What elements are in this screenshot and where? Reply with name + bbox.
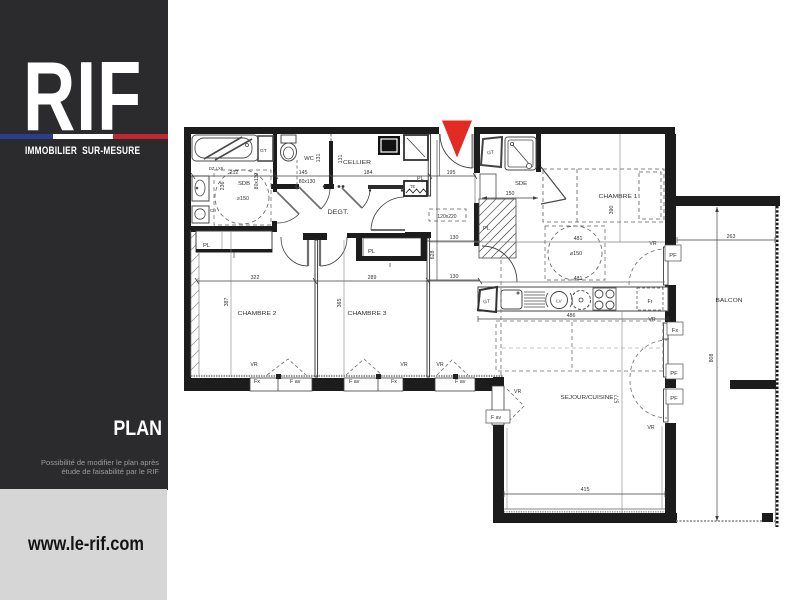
svg-text:80x130: 80x130: [299, 179, 316, 185]
svg-text:F av: F av: [290, 379, 301, 385]
svg-text:F av: F av: [349, 379, 360, 385]
svg-text:VR: VR: [514, 389, 521, 395]
svg-text:131: 131: [316, 154, 322, 163]
svg-text:VR: VR: [400, 362, 407, 368]
svg-text:80x130: 80x130: [254, 173, 260, 190]
svg-text:390: 390: [609, 206, 615, 215]
svg-text:F av: F av: [491, 415, 501, 421]
svg-text:263: 263: [727, 234, 736, 240]
svg-text:PL: PL: [368, 249, 376, 255]
svg-text:CELLIER: CELLIER: [343, 160, 371, 166]
svg-text:F av: F av: [455, 379, 466, 385]
svg-text:808: 808: [709, 354, 715, 363]
svg-text:481: 481: [574, 236, 583, 242]
svg-text:387: 387: [224, 298, 230, 307]
svg-text:GT: GT: [260, 148, 267, 154]
svg-text:SEJOUR/CUISINE: SEJOUR/CUISINE: [561, 395, 614, 401]
svg-text:130: 130: [450, 235, 459, 241]
svg-text:184: 184: [364, 170, 373, 176]
svg-text:VR: VR: [436, 362, 443, 368]
svg-text:415: 415: [581, 487, 590, 493]
svg-text:145: 145: [299, 170, 308, 176]
svg-text:Fr: Fr: [647, 299, 652, 305]
svg-text:130: 130: [450, 274, 459, 280]
svg-text:236: 236: [220, 182, 226, 191]
svg-text:577: 577: [615, 395, 621, 404]
svg-text:DEGT.: DEGT.: [328, 210, 349, 216]
svg-text:WC: WC: [304, 156, 315, 162]
svg-text:CHAMBRE 1: CHAMBRE 1: [599, 194, 638, 200]
svg-text:Fx: Fx: [254, 379, 260, 385]
svg-text:PL: PL: [203, 243, 211, 249]
svg-text:SDE: SDE: [515, 181, 527, 187]
svg-text:PF: PF: [669, 253, 677, 259]
svg-text:CH: CH: [210, 208, 216, 213]
svg-text:PF: PF: [670, 396, 678, 402]
svg-text:212: 212: [230, 170, 239, 176]
svg-text:SDB: SDB: [238, 181, 250, 187]
svg-text:CHAMBRE 3: CHAMBRE 3: [348, 311, 388, 317]
svg-text:PF: PF: [670, 371, 678, 377]
svg-text:BALCON: BALCON: [716, 298, 743, 304]
svg-text:⌀150: ⌀150: [570, 251, 582, 257]
svg-text:GT: GT: [483, 299, 490, 306]
svg-text:GT: GT: [487, 150, 494, 157]
svg-text:CHAMBRE 2: CHAMBRE 2: [238, 311, 277, 317]
svg-text:195: 195: [447, 170, 456, 176]
svg-text:120x220: 120x220: [437, 214, 456, 220]
svg-text:Fx: Fx: [672, 328, 679, 334]
svg-text:LV: LV: [556, 299, 562, 305]
svg-text:150: 150: [506, 191, 515, 197]
svg-text:DZ LX9: DZ LX9: [209, 166, 224, 171]
svg-text:365: 365: [337, 299, 343, 308]
svg-text:PL: PL: [483, 226, 491, 232]
svg-text:Fx: Fx: [391, 379, 397, 385]
svg-text:VR: VR: [648, 317, 655, 323]
svg-text:289: 289: [368, 275, 377, 281]
svg-text:VR: VR: [647, 425, 654, 431]
svg-text:VR: VR: [649, 241, 656, 247]
svg-text:322: 322: [251, 275, 260, 281]
svg-text:481: 481: [574, 276, 583, 282]
svg-text:VR: VR: [250, 362, 257, 368]
svg-text:≥150: ≥150: [237, 196, 249, 202]
svg-text:TE: TE: [410, 184, 416, 189]
svg-text:628: 628: [430, 251, 436, 260]
svg-text:486: 486: [567, 313, 576, 319]
